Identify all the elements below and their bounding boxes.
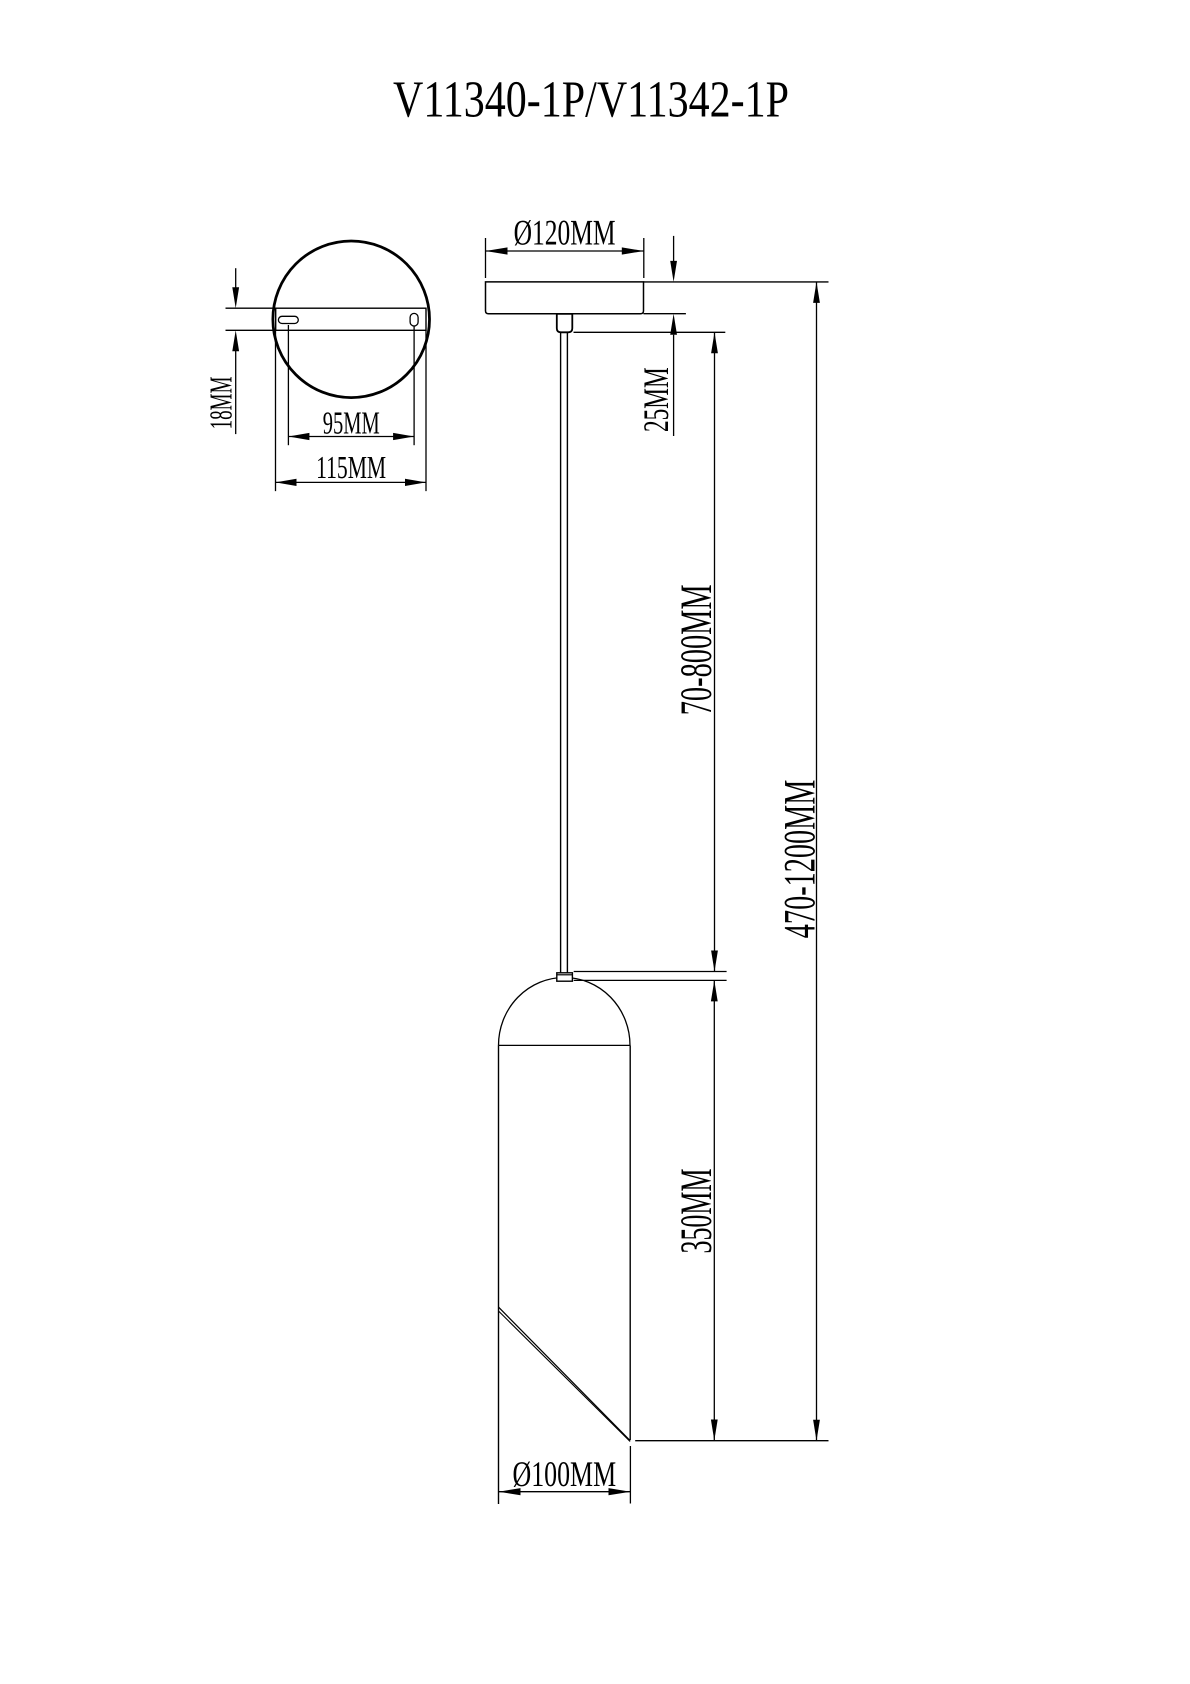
svg-text:25MM: 25MM — [636, 367, 676, 432]
svg-text:70-800MM: 70-800MM — [671, 584, 721, 715]
svg-text:Ø120MM: Ø120MM — [514, 213, 616, 253]
svg-text:18MM: 18MM — [202, 376, 238, 429]
svg-text:95MM: 95MM — [323, 405, 380, 441]
svg-text:470-1200MM: 470-1200MM — [775, 780, 825, 939]
svg-text:V11340-1P/V11342-1P: V11340-1P/V11342-1P — [393, 72, 789, 129]
svg-text:Ø100MM: Ø100MM — [513, 1454, 617, 1494]
svg-text:350MM: 350MM — [671, 1169, 721, 1254]
svg-text:115MM: 115MM — [316, 449, 386, 485]
